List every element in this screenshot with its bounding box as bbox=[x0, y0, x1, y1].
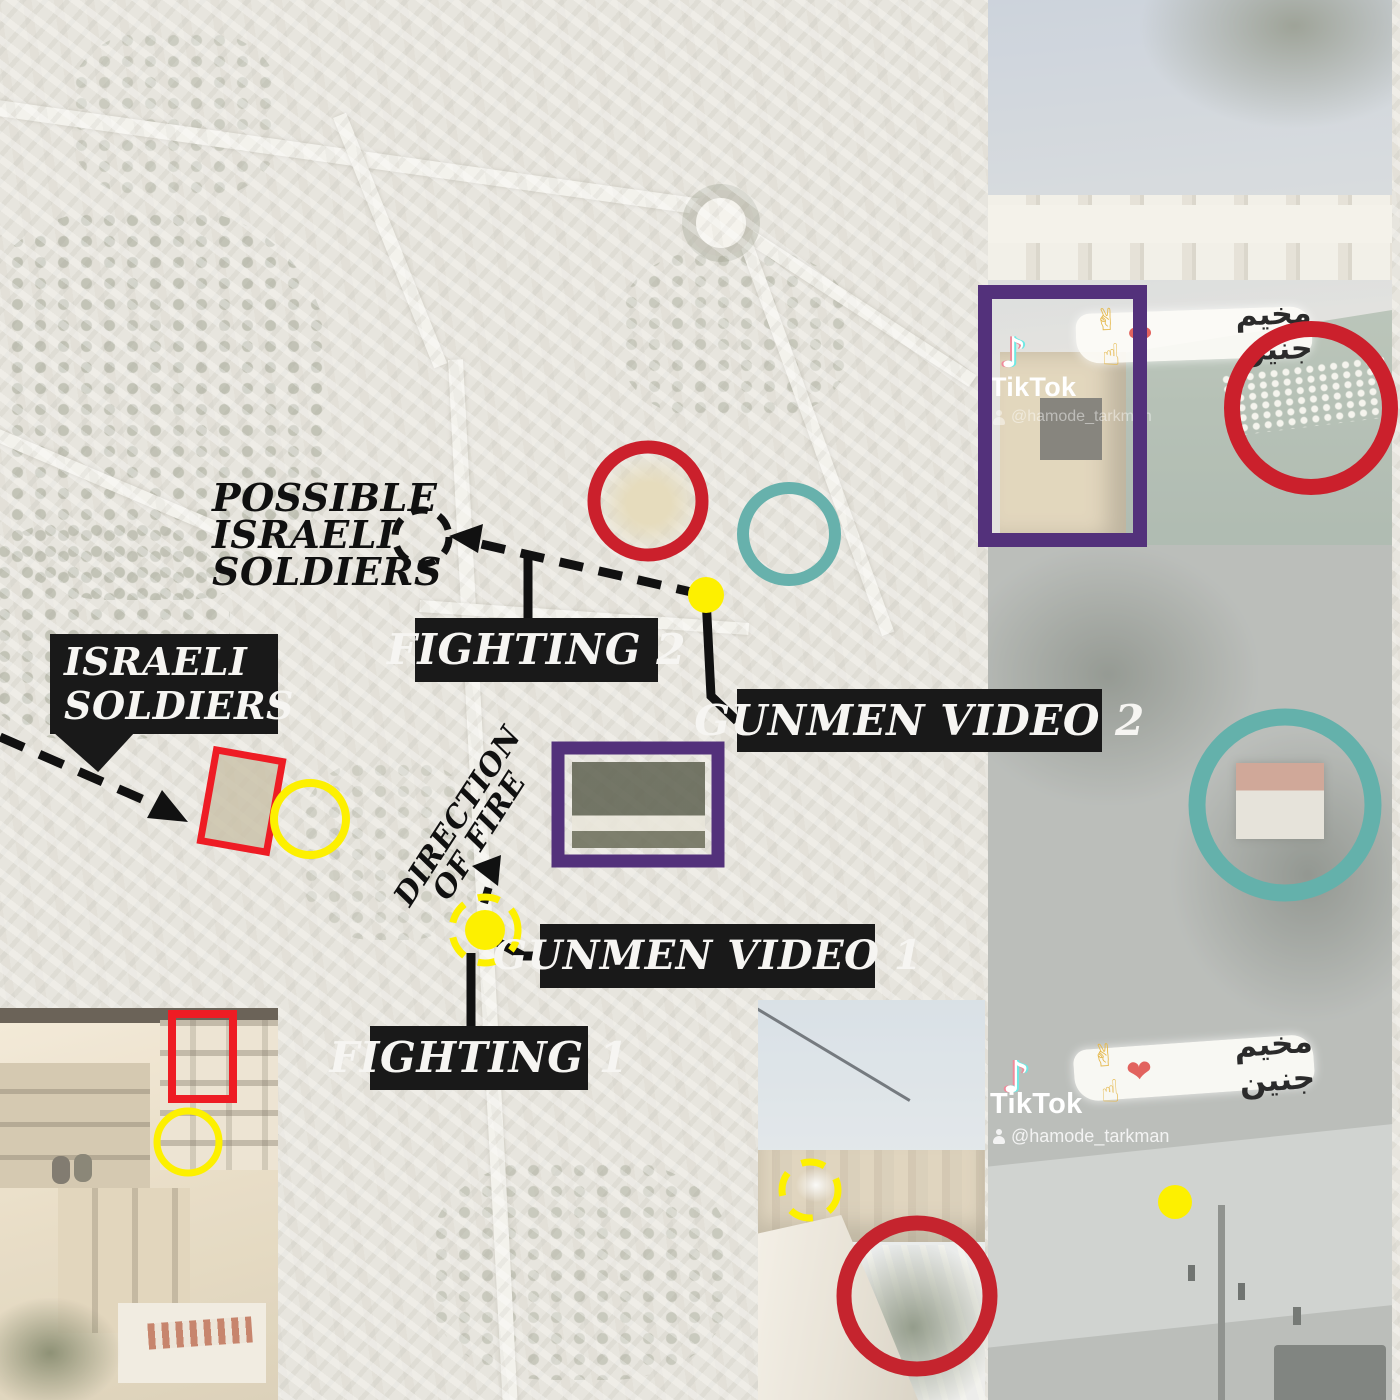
red-rect-map bbox=[201, 750, 283, 852]
label-possible-israeli-soldiers: POSSIBLE ISRAELI SOLDIERS bbox=[212, 480, 442, 591]
purple-rect-video bbox=[985, 292, 1140, 540]
label-fighting-1: FIGHTING 1 bbox=[370, 1026, 588, 1090]
yellow-dashed-circle-smoke bbox=[782, 1162, 838, 1218]
label-gunmen-video-2: GUNMEN VIDEO 2 bbox=[737, 689, 1102, 752]
teal-circle-map bbox=[743, 488, 835, 580]
purple-rect-map bbox=[558, 748, 718, 861]
red-circle-video bbox=[1232, 329, 1390, 487]
arrowhead-sightline bbox=[449, 524, 483, 553]
label-line: SOLDIERS bbox=[64, 684, 294, 728]
label-line: ISRAELI bbox=[64, 640, 247, 684]
yellow-dot-video bbox=[1158, 1185, 1192, 1219]
yellow-circle-inset bbox=[157, 1111, 219, 1173]
investigation-graphic: ♪ TikTok @hamode_tarkman مخيم جنين ❤ ✌☝ … bbox=[0, 0, 1400, 1400]
red-circle-cemetery bbox=[844, 1223, 990, 1369]
red-circle-map bbox=[594, 447, 702, 555]
arrowhead-soldiers bbox=[147, 790, 188, 822]
label-gunmen-video-1: GUNMEN VIDEO 1 bbox=[540, 924, 875, 988]
label-fighting-2: FIGHTING 2 bbox=[415, 618, 658, 682]
yellow-dot-gunmen-2 bbox=[688, 577, 724, 613]
red-rect-inset bbox=[172, 1014, 233, 1099]
yellow-circle-map bbox=[274, 783, 346, 855]
label-line: SOLDIERS bbox=[212, 554, 442, 591]
teal-circle-video bbox=[1197, 717, 1373, 893]
label-israeli-soldiers: ISRAELI SOLDIERS bbox=[50, 634, 278, 734]
